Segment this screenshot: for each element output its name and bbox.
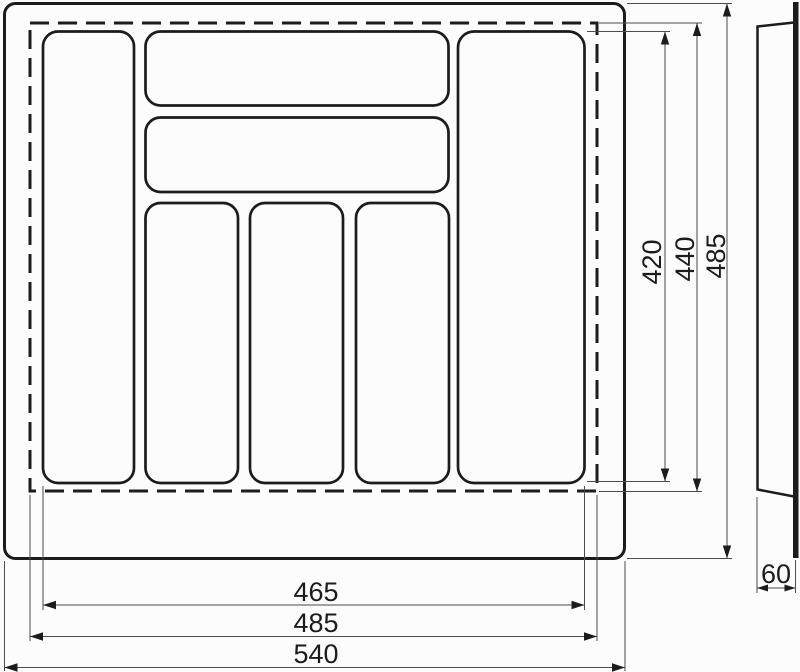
arrow-465-left-icon (43, 601, 56, 609)
dim-label-485-width: 485 (293, 608, 338, 638)
compartment-vertical-1 (146, 203, 239, 483)
dimension-labels: 465 485 540 420 440 485 60 (293, 233, 791, 669)
side-profile-front-edge (793, 2, 799, 558)
dimension-lines (5, 4, 796, 672)
arrow-485w-left-icon (30, 632, 43, 640)
main-top-view (5, 4, 625, 559)
arrow-440-top-icon (693, 23, 701, 36)
arrow-465-right-icon (572, 601, 585, 609)
arrow-485w-right-icon (584, 632, 597, 640)
trim-line-dashed (30, 23, 597, 491)
arrow-540-right-icon (612, 663, 625, 671)
compartment-vertical-3 (356, 203, 449, 483)
compartment-top-wide (146, 32, 449, 106)
side-profile-body (758, 23, 795, 497)
cutlery-tray-dimension-drawing: 465 485 540 420 440 485 60 (0, 0, 800, 672)
arrow-420-top-icon (661, 32, 669, 45)
dim-label-440: 440 (670, 236, 700, 281)
dim-label-485-height: 485 (701, 233, 731, 278)
compartment-right-tall (458, 32, 585, 484)
arrow-485h-bottom-icon (723, 546, 731, 559)
compartment-second-wide (146, 118, 449, 193)
side-profile-view (758, 2, 799, 558)
dim-label-60: 60 (761, 559, 791, 589)
tray-outer-outline (5, 4, 625, 559)
extension-lines (5, 4, 796, 672)
dim-label-540: 540 (293, 639, 338, 669)
arrow-540-left-icon (5, 663, 18, 671)
technical-drawing-canvas: 465 485 540 420 440 485 60 (0, 0, 800, 672)
compartment-left-tall (43, 32, 134, 484)
arrow-485h-top-icon (723, 4, 731, 17)
arrow-420-bottom-icon (661, 469, 669, 482)
dim-label-420: 420 (637, 239, 667, 284)
dim-label-465: 465 (293, 577, 338, 607)
arrow-440-bottom-icon (693, 479, 701, 492)
compartment-vertical-2 (250, 203, 343, 483)
